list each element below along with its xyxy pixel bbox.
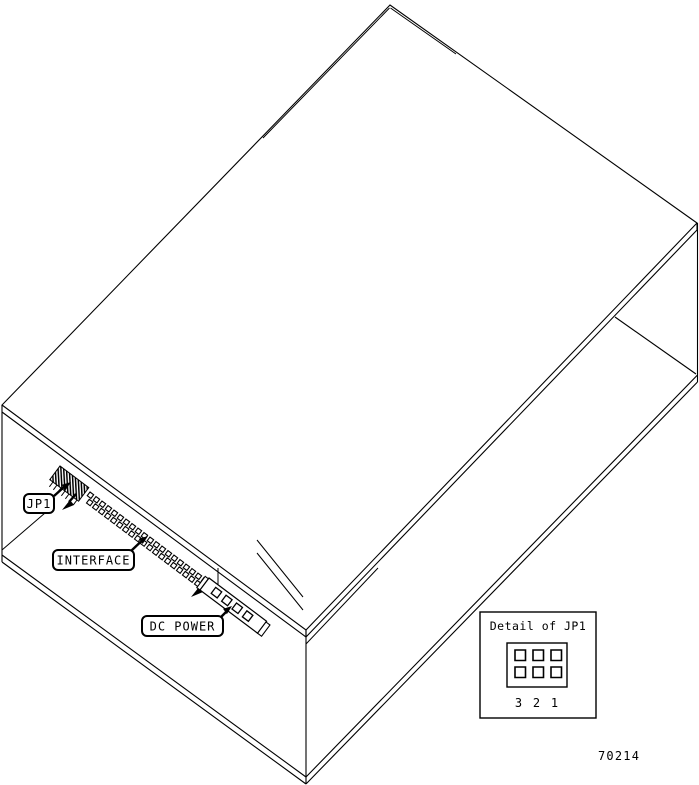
interface-label-text: INTERFACE: [56, 554, 130, 568]
pin-number-1: 1: [551, 696, 558, 710]
jp1-label-text: JP1: [27, 497, 52, 511]
figure-canvas: JP1 INTERFACE DC POWER Detail of JP1 3 2…: [0, 0, 699, 785]
figure-number: 70214: [598, 749, 640, 763]
pin-number-2: 2: [533, 696, 540, 710]
device-diagram: JP1 INTERFACE DC POWER Detail of JP1 3 2…: [0, 0, 699, 785]
detail-title: Detail of JP1: [490, 619, 587, 633]
dc-power-label-text: DC POWER: [150, 620, 216, 634]
detail-of-jp1: Detail of JP1 3 2 1: [480, 612, 596, 718]
pin-number-3: 3: [515, 696, 522, 710]
